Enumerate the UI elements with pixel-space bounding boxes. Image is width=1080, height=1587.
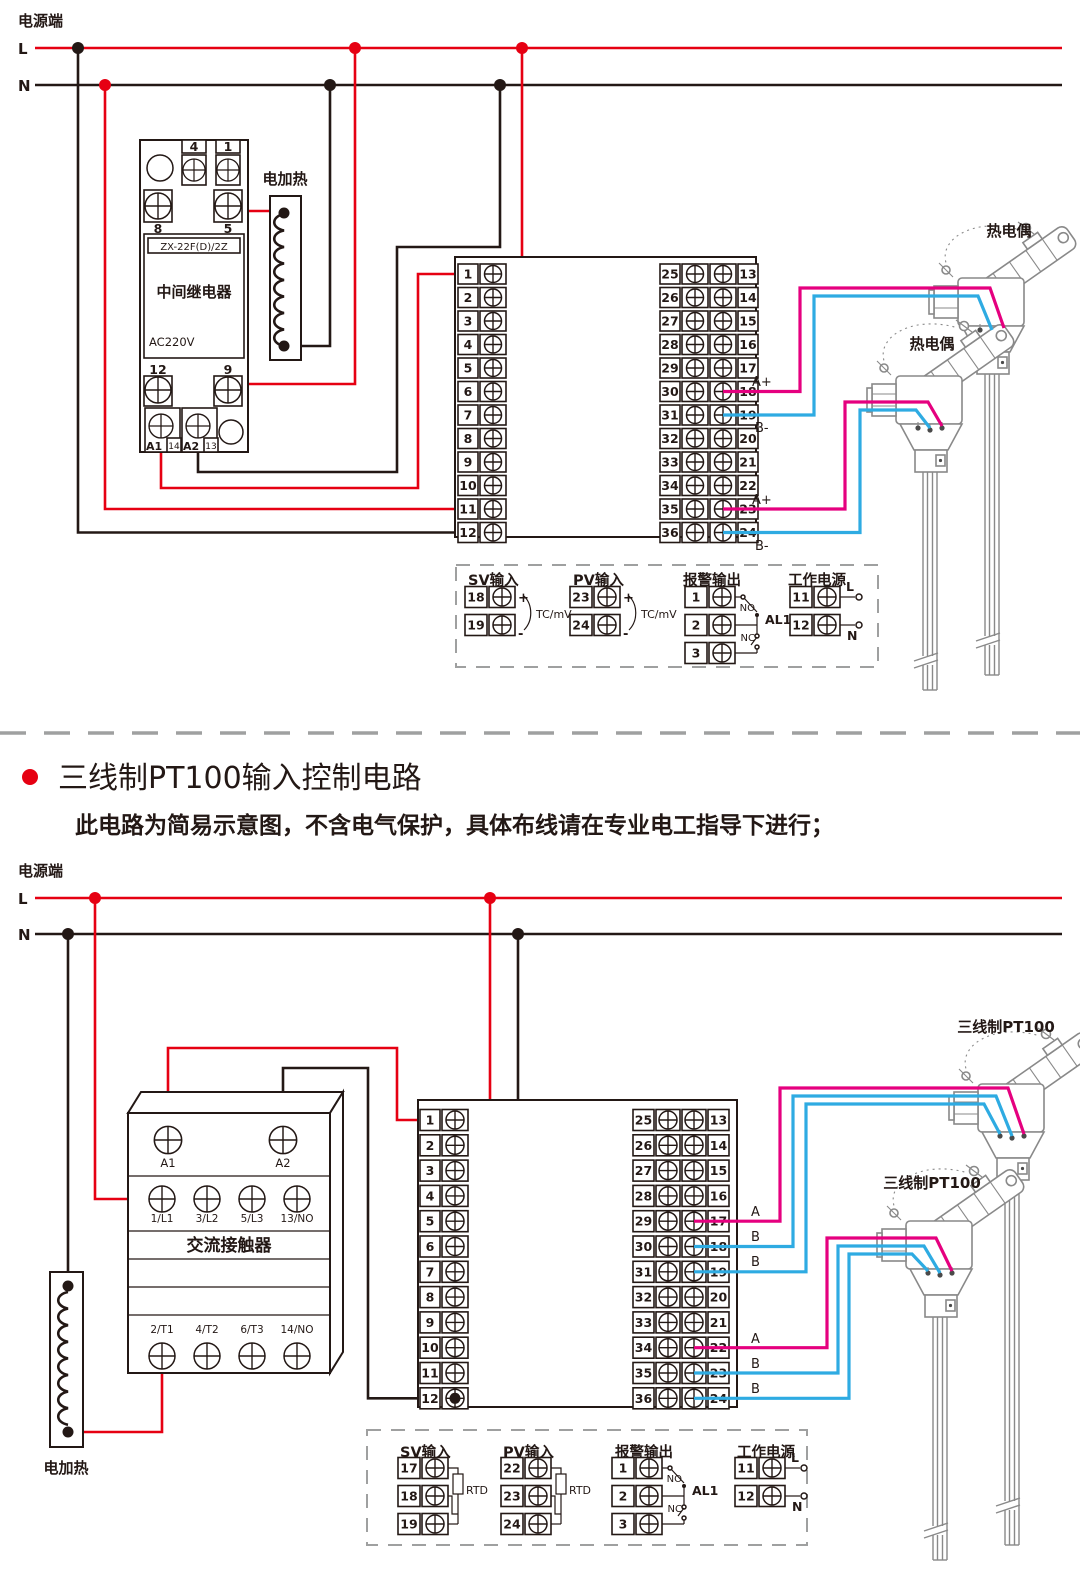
contactor-a2: A2 xyxy=(275,1156,290,1170)
contactor-4t2: 4/T2 xyxy=(195,1324,218,1336)
power-terminals-b: 1112 xyxy=(735,1458,785,1507)
terminal-number: 12 xyxy=(421,1391,438,1406)
relay-terminal-12: 12 xyxy=(149,362,166,377)
bottom-line-n-label: N xyxy=(18,926,31,944)
contactor-a1: A1 xyxy=(160,1156,175,1170)
top-power-rails: 电源端 L N xyxy=(18,12,1062,95)
contactor-3l2: 3/L2 xyxy=(196,1213,219,1225)
terminal-number: 16 xyxy=(739,337,757,352)
alarm-switch: NO NC AL1 xyxy=(735,595,791,653)
terminal-number: 35 xyxy=(661,502,678,517)
alarm-nc-label: NC xyxy=(741,633,755,644)
terminal-number: 7 xyxy=(464,408,473,423)
pt100-1-label: 三线制PT100 xyxy=(957,1018,1055,1036)
sv-sensor-type-b: RTD xyxy=(466,1484,488,1497)
thermocouple-1-label: 热电偶 xyxy=(986,222,1031,240)
terminal-number: 1 xyxy=(619,1461,628,1476)
terminal-number: 1 xyxy=(426,1113,435,1128)
relay-terminal-1: 1 xyxy=(224,139,233,154)
terminal-number: 12 xyxy=(792,618,809,633)
wire-label-19: B- xyxy=(755,421,769,436)
terminal-number: 22 xyxy=(503,1461,520,1476)
terminal-number: 21 xyxy=(710,1315,727,1330)
terminal-number: 29 xyxy=(661,361,678,376)
terminal-number: 28 xyxy=(661,337,678,352)
terminal-number: 26 xyxy=(661,290,679,305)
terminal-number: 19 xyxy=(400,1517,417,1532)
contactor-14no: 14/NO xyxy=(280,1324,313,1336)
pv-minus: - xyxy=(623,627,628,642)
bottom-sensor-wiring xyxy=(694,1088,1024,1398)
terminal-number: 15 xyxy=(739,314,756,329)
terminal-number: 8 xyxy=(464,431,473,446)
wire-label-24: B- xyxy=(755,539,769,554)
ac-contactor: A1 A2 1/L1 3/L2 5/L3 13/NO 交流接触器 2/T1 4/… xyxy=(128,1092,343,1373)
terminal-number: 33 xyxy=(635,1315,652,1330)
terminal-number: 33 xyxy=(661,455,678,470)
terminal-number: 11 xyxy=(421,1366,438,1381)
thermocouple-probe xyxy=(914,472,938,690)
alarm-name: AL1 xyxy=(765,612,791,627)
sv-minus: - xyxy=(518,627,523,642)
sv-plus: + xyxy=(518,591,529,606)
bottom-power-terminal-label: 电源端 xyxy=(18,862,63,880)
terminal-number: 3 xyxy=(464,314,473,329)
wire-label-18b: B xyxy=(751,1230,760,1245)
terminal-number: 11 xyxy=(792,590,809,605)
terminal-number: 30 xyxy=(635,1239,653,1254)
terminal-number: 34 xyxy=(635,1340,653,1355)
terminal-number: 1 xyxy=(692,590,701,605)
terminal-number: 12 xyxy=(459,525,476,540)
wiring-diagram-page: 电源端 L N 4 1 8 5 ZX-22F(D)/2Z 中间 xyxy=(0,0,1080,1587)
terminal-number: 2 xyxy=(464,290,473,305)
terminal-number: 8 xyxy=(426,1290,435,1305)
pt100-1 xyxy=(949,1024,1080,1545)
terminal-number: 3 xyxy=(426,1163,435,1178)
terminal-number: 2 xyxy=(426,1138,435,1153)
bottom-line-l-label: L xyxy=(18,890,28,908)
pv-sensor-type-b: RTD xyxy=(569,1484,591,1497)
relay-terminal-a2: A2 xyxy=(183,440,199,453)
section-subtitle: 此电路为简易示意图，不含电气保护，具体布线请在专业电工指导下进行； xyxy=(75,812,834,839)
terminal-number: 28 xyxy=(635,1188,652,1203)
bullet-icon xyxy=(22,769,38,785)
terminal-number: 12 xyxy=(737,1489,754,1504)
bottom-terminal-block: 123456789101112 251326142715281629173018… xyxy=(418,1100,737,1409)
alarm-switch-b: NO NC AL1 xyxy=(662,1466,718,1524)
terminal-number: 11 xyxy=(737,1461,754,1476)
terminal-number: 36 xyxy=(661,525,679,540)
terminal-number: 15 xyxy=(710,1163,727,1178)
terminal-number: 4 xyxy=(464,337,473,352)
terminal-number: 16 xyxy=(710,1188,728,1203)
bottom-heater-label: 电加热 xyxy=(43,1459,88,1477)
power-l-label-b: L xyxy=(791,1450,799,1465)
section-title: 三线制PT100输入控制电路 xyxy=(58,761,422,796)
terminal-number: 10 xyxy=(459,478,477,493)
terminal-number: 23 xyxy=(503,1489,520,1504)
alarm-terminals: 123 xyxy=(685,587,735,664)
terminal-number: 27 xyxy=(661,314,678,329)
sv-terminals: 1819 xyxy=(465,587,515,636)
thermocouple-1 xyxy=(929,218,1078,675)
alarm-no-label-b: NO xyxy=(667,1474,682,1485)
terminal-number: 32 xyxy=(635,1290,652,1305)
terminal-number: 27 xyxy=(635,1163,652,1178)
top-line-l-label: L xyxy=(18,40,28,58)
wire-label-24b: B xyxy=(751,1382,760,1397)
terminal-number: 13 xyxy=(739,267,756,282)
sv-terminals-b: 171819 xyxy=(398,1458,448,1535)
relay-name: 中间继电器 xyxy=(156,283,232,301)
section-divider-and-title: 三线制PT100输入控制电路 此电路为简易示意图，不含电气保护，具体布线请在专业… xyxy=(0,733,1080,839)
wire-label-23: A+ xyxy=(752,493,772,508)
terminal-number: 20 xyxy=(710,1290,728,1305)
pt100-probe xyxy=(996,1180,1020,1545)
relay-terminal-9: 9 xyxy=(224,362,233,377)
pv-plus: + xyxy=(623,591,634,606)
power-n-label: N xyxy=(847,628,857,643)
relay-terminal-4: 4 xyxy=(190,139,199,154)
pv-terminals: 2324 xyxy=(570,587,620,636)
top-heater-label: 电加热 xyxy=(262,170,307,188)
terminal-number: 14 xyxy=(710,1138,728,1153)
top-terminal-block: 123456789101112 251326142715281629173018… xyxy=(455,257,758,543)
thermocouple-2-label: 热电偶 xyxy=(909,335,954,353)
terminal-number: 4 xyxy=(426,1188,435,1203)
terminal-number: 13 xyxy=(710,1113,727,1128)
terminal-number: 17 xyxy=(400,1461,417,1476)
terminal-number: 25 xyxy=(661,267,678,282)
terminal-number: 25 xyxy=(635,1113,652,1128)
terminal-number: 31 xyxy=(661,408,678,423)
thermocouple-probe xyxy=(976,374,1000,675)
terminal-number: 32 xyxy=(661,431,678,446)
relay-terminal-13: 13 xyxy=(205,442,216,452)
alarm-nc-label-b: NC xyxy=(668,1504,682,1515)
bottom-power-rails: 电源端 L N xyxy=(18,862,1062,944)
terminal-number: 23 xyxy=(572,590,589,605)
relay-terminal-a1: A1 xyxy=(146,440,162,453)
terminal-number: 26 xyxy=(635,1138,653,1153)
power-l-label: L xyxy=(846,579,854,594)
terminal-number: 2 xyxy=(619,1489,628,1504)
terminal-number: 18 xyxy=(467,590,484,605)
sv-sensor-type: TC/mV xyxy=(535,608,572,621)
relay-voltage: AC220V xyxy=(149,335,195,349)
relay-model: ZX-22F(D)/2Z xyxy=(160,242,228,253)
contactor-1l1: 1/L1 xyxy=(151,1213,174,1225)
terminal-number: 3 xyxy=(619,1517,628,1532)
pv-rtd: RTD xyxy=(551,1468,591,1524)
sv-rtd: RTD xyxy=(448,1468,488,1524)
wire-label-23b: B xyxy=(751,1357,760,1372)
terminal-number: 19 xyxy=(467,618,484,633)
top-power-terminal-label: 电源端 xyxy=(18,12,63,30)
wire-label-22: A xyxy=(751,1332,760,1347)
pt100-2-label: 三线制PT100 xyxy=(883,1174,981,1192)
intermediate-relay: 4 1 8 5 ZX-22F(D)/2Z 中间继电器 AC220V 12 9 A… xyxy=(140,139,248,453)
pv-terminals-b: 222324 xyxy=(501,1458,551,1535)
wire-label-17: A xyxy=(751,1205,760,1220)
diagram-canvas: 电源端 L N 4 1 8 5 ZX-22F(D)/2Z 中间 xyxy=(0,0,1080,1587)
terminal-number: 10 xyxy=(421,1340,439,1355)
terminal-number: 11 xyxy=(459,502,476,517)
power-n-label-b: N xyxy=(792,1499,802,1514)
top-legend: SV输入 PV输入 报警输出 工作电源 1819 2324 123 1112 +… xyxy=(456,565,878,667)
terminal-number: 31 xyxy=(635,1264,652,1279)
power-terminals: 1112 xyxy=(790,587,840,636)
alarm-no-label: NO xyxy=(740,603,755,614)
contactor-name: 交流接触器 xyxy=(187,1235,273,1256)
wire-label-19b: B xyxy=(751,1255,760,1270)
terminal-number: 30 xyxy=(661,384,679,399)
terminal-number: 5 xyxy=(426,1214,435,1229)
terminal-number: 34 xyxy=(661,478,679,493)
terminal-number: 9 xyxy=(426,1315,435,1330)
relay-terminal-14: 14 xyxy=(168,442,180,452)
alarm-name-b: AL1 xyxy=(692,1483,718,1498)
terminal-number: 21 xyxy=(739,455,756,470)
terminal-number: 36 xyxy=(635,1391,653,1406)
top-heater: 电加热 xyxy=(262,170,307,360)
pt100-probe xyxy=(924,1317,948,1560)
terminal-number: 24 xyxy=(572,618,590,633)
terminal-number: 2 xyxy=(692,618,701,633)
contactor-5l3: 5/L3 xyxy=(241,1213,264,1225)
terminal-number: 6 xyxy=(426,1239,435,1254)
terminal-number: 14 xyxy=(739,290,757,305)
terminal-number: 7 xyxy=(426,1264,435,1279)
bottom-heater: 电加热 xyxy=(43,1272,88,1477)
terminal-number: 5 xyxy=(464,361,473,376)
terminal-number: 18 xyxy=(400,1489,417,1504)
terminal-number: 17 xyxy=(739,361,756,376)
terminal-number: 35 xyxy=(635,1366,652,1381)
terminal-number: 1 xyxy=(464,267,473,282)
contactor-6t3: 6/T3 xyxy=(240,1324,263,1336)
top-line-n-label: N xyxy=(18,77,31,95)
pv-sensor-type: TC/mV xyxy=(640,608,677,621)
wire-label-18: A+ xyxy=(752,375,772,390)
terminal-number: 9 xyxy=(464,455,473,470)
terminal-number: 29 xyxy=(635,1214,652,1229)
terminal-number: 6 xyxy=(464,384,473,399)
terminal-number: 22 xyxy=(739,478,756,493)
terminal-number: 24 xyxy=(503,1517,521,1532)
contactor-2t1: 2/T1 xyxy=(150,1324,173,1336)
pt100-2 xyxy=(877,1161,1026,1560)
terminal-number: 3 xyxy=(692,646,701,661)
alarm-terminals-b: 123 xyxy=(612,1458,662,1535)
bottom-legend: SV输入 PV输入 报警输出 工作电源 171819 222324 123 11… xyxy=(367,1430,807,1545)
contactor-13no: 13/NO xyxy=(280,1213,313,1225)
